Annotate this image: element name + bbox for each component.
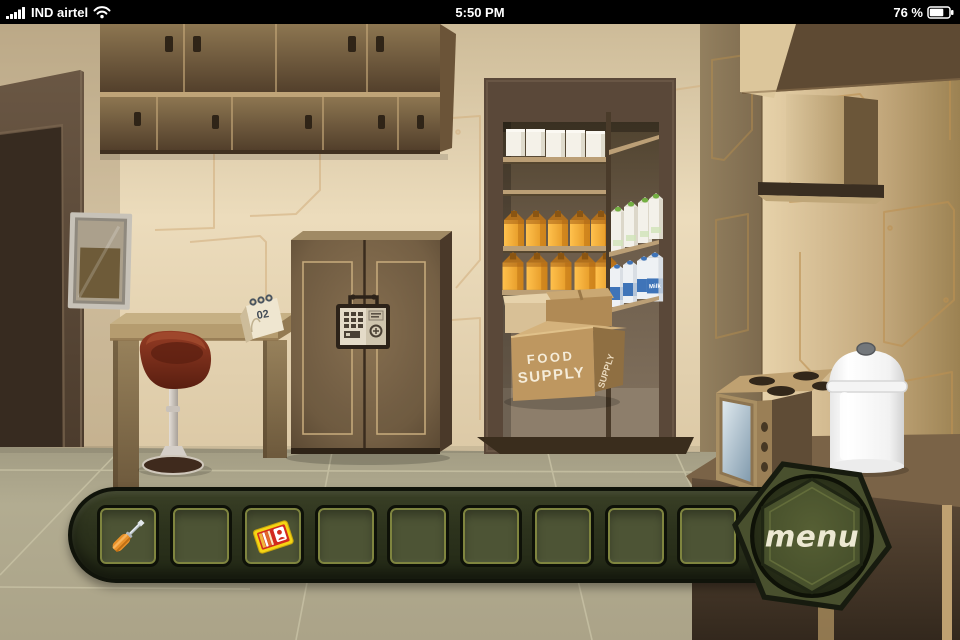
menu-label: MENU (765, 520, 859, 554)
screwdriver-icon (105, 513, 151, 559)
wall-mirror[interactable] (68, 212, 132, 310)
inventory-slot-2[interactable] (170, 505, 232, 567)
doormat[interactable] (477, 437, 694, 454)
clock: 5:50 PM (0, 5, 960, 20)
status-bar: IND airtel 5:50 PM 76 % (0, 0, 960, 24)
battery-percent: 76 % (893, 5, 923, 20)
pantry[interactable]: Milk FOOD SUPPLY SUPPLY (477, 78, 694, 454)
inventory-slot-5[interactable] (387, 505, 449, 567)
upper-cabinets[interactable] (100, 24, 456, 160)
id-card-icon (250, 513, 296, 559)
inventory-slot-4[interactable] (315, 505, 377, 567)
battery-icon (927, 6, 954, 19)
inventory-slot-6[interactable] (460, 505, 522, 567)
milk-label: Milk (649, 284, 662, 291)
locked-wardrobe[interactable] (286, 231, 452, 465)
inventory-slots (97, 505, 739, 567)
inventory-slot-8[interactable] (605, 505, 667, 567)
inventory-slot-1[interactable] (97, 505, 159, 567)
inventory-slot-3[interactable] (242, 505, 304, 567)
game-screen: IND airtel 5:50 PM 76 % (0, 0, 960, 640)
menu-button[interactable]: MENU (728, 452, 896, 620)
inventory-slot-7[interactable] (532, 505, 594, 567)
